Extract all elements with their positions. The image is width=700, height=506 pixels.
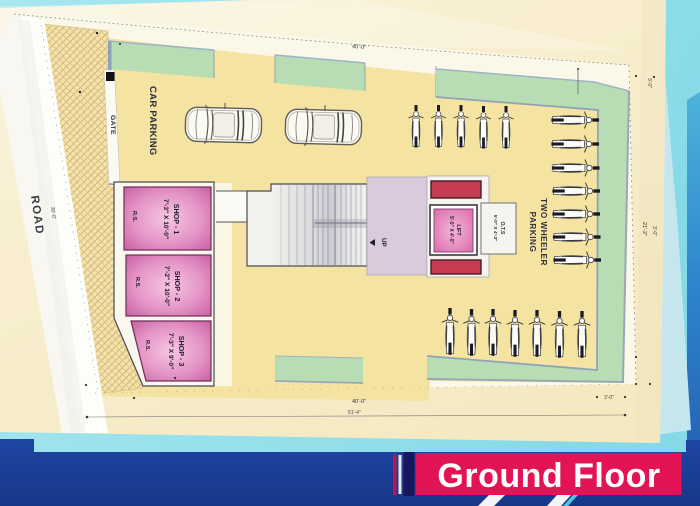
svg-text:LIFT: LIFT	[455, 224, 461, 236]
svg-text:40'-0": 40'-0"	[352, 44, 366, 51]
svg-text:UP: UP	[380, 238, 387, 247]
svg-text:5'-0" X 4'-3": 5'-0" X 4'-3"	[492, 215, 498, 242]
svg-text:21'-2": 21'-2"	[641, 222, 647, 236]
svg-text:CAR PARKING: CAR PARKING	[147, 86, 158, 156]
svg-text:51'-4": 51'-4"	[348, 410, 361, 416]
svg-text:O.T.S: O.T.S	[499, 222, 505, 236]
svg-text:SHOP - 1: SHOP - 1	[172, 204, 181, 235]
svg-text:Ground Floor: Ground Floor	[437, 457, 660, 495]
svg-text:SHOP - 2: SHOP - 2	[173, 271, 182, 302]
svg-text:R.S.: R.S.	[131, 211, 137, 222]
svg-text:7'-3" X 9'-0": 7'-3" X 9'-0"	[167, 333, 174, 370]
svg-text:3'-0": 3'-0"	[604, 395, 614, 401]
svg-text:TWO WHEELER: TWO WHEELER	[539, 198, 548, 266]
svg-text:GATE: GATE	[109, 115, 116, 135]
svg-text:PARKING: PARKING	[528, 212, 537, 253]
svg-text:SHOP - 3: SHOP - 3	[177, 336, 186, 367]
svg-text:3'-0": 3'-0"	[646, 78, 652, 88]
svg-text:R.S.: R.S.	[134, 277, 140, 288]
svg-text:R.S.: R.S.	[144, 340, 150, 351]
svg-text:5'-0" X 4'-0": 5'-0" X 4'-0"	[448, 216, 454, 244]
svg-text:7'-2" X 10'-0": 7'-2" X 10'-0"	[163, 266, 170, 306]
svg-text:7'-3" X 10'-0": 7'-3" X 10'-0"	[162, 199, 169, 239]
svg-text:3'-0": 3'-0"	[651, 226, 657, 236]
svg-text:40'-0": 40'-0"	[352, 399, 366, 405]
